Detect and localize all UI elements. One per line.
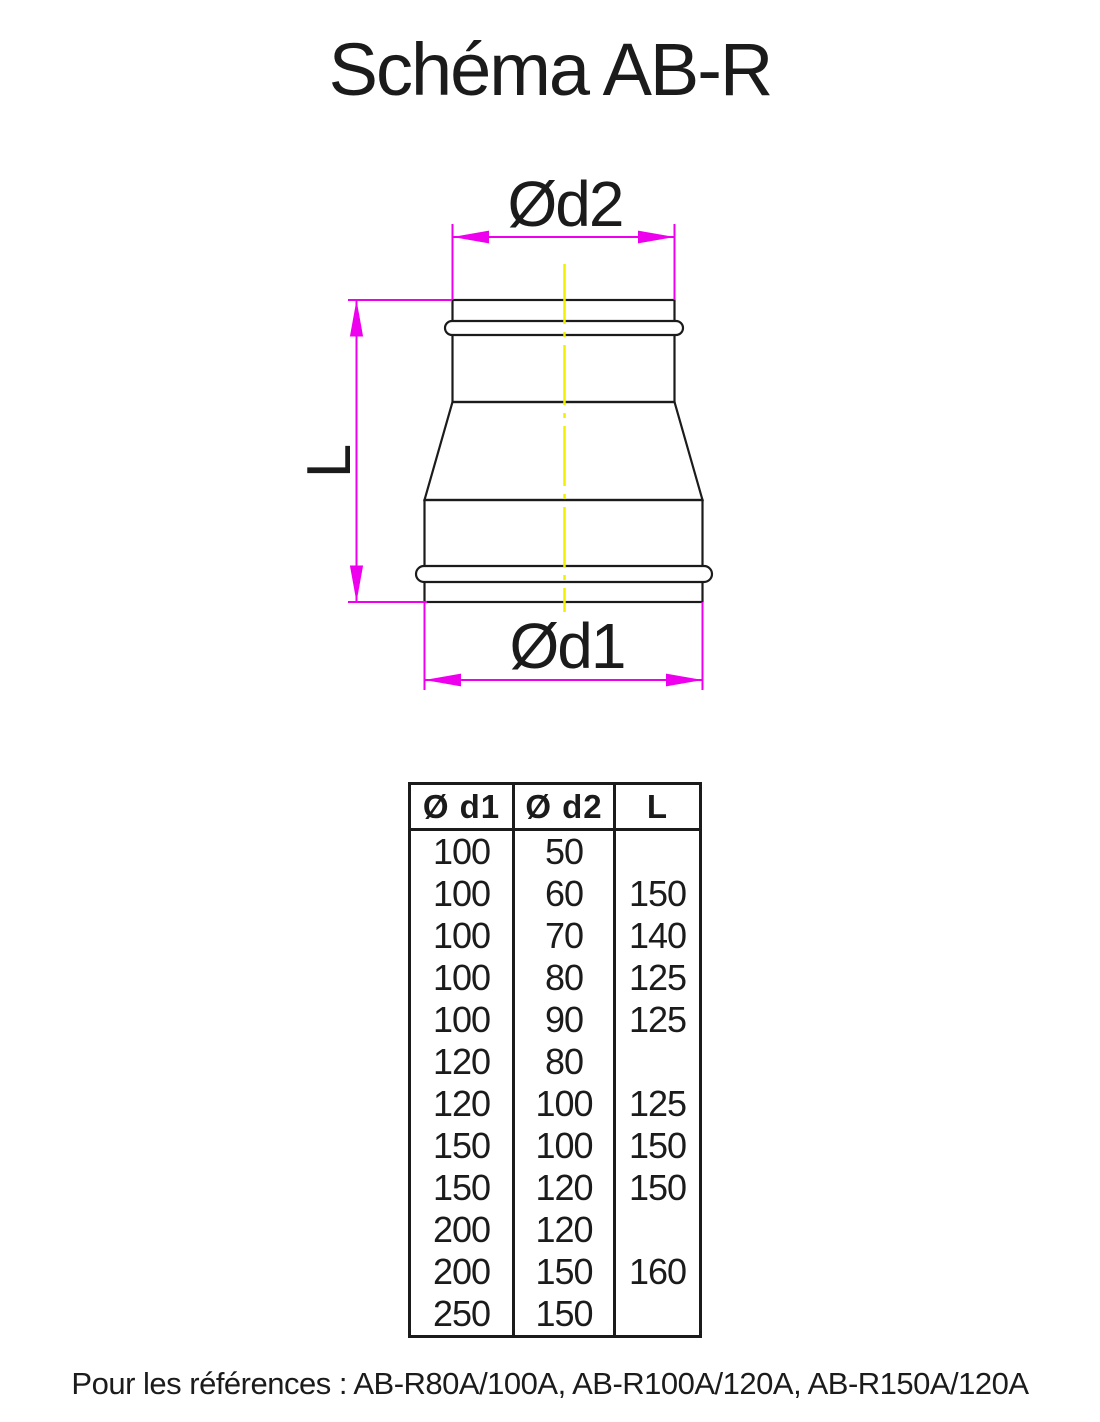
table-cell: 120 bbox=[514, 1209, 615, 1251]
references-note: Pour les références : AB-R80A/100A, AB-R… bbox=[0, 1366, 1100, 1402]
table-cell: 120 bbox=[514, 1167, 615, 1209]
table-row: 150100150 bbox=[410, 1125, 701, 1167]
table-cell: 150 bbox=[410, 1125, 514, 1167]
table-cell: 100 bbox=[410, 873, 514, 915]
table-row: 200150160 bbox=[410, 1251, 701, 1293]
table-cell: 80 bbox=[514, 1041, 615, 1083]
table-row: 12080 bbox=[410, 1041, 701, 1083]
table-cell: 140 bbox=[615, 915, 701, 957]
table-cell: 100 bbox=[410, 957, 514, 999]
table-cell: 150 bbox=[615, 873, 701, 915]
table-cell: 70 bbox=[514, 915, 615, 957]
table-cell: 120 bbox=[410, 1083, 514, 1125]
table-cell: 120 bbox=[410, 1041, 514, 1083]
table-row: 250150 bbox=[410, 1293, 701, 1337]
table-cell: 60 bbox=[514, 873, 615, 915]
dim-label-l: L bbox=[295, 445, 364, 478]
table-cell bbox=[615, 830, 701, 874]
page: Schéma AB-R Ød2 L bbox=[0, 0, 1100, 1422]
dimension-l: L bbox=[295, 300, 452, 602]
arrowhead-left bbox=[425, 674, 462, 687]
table-cell: 100 bbox=[514, 1125, 615, 1167]
table-cell bbox=[615, 1293, 701, 1337]
arrowhead-up bbox=[350, 300, 363, 337]
dimensions-table: Ø d1 Ø d2 L 1005010060150100701401008012… bbox=[408, 782, 702, 1338]
arrowhead-left bbox=[453, 231, 490, 244]
arrowhead-right bbox=[666, 674, 703, 687]
table-cell: 125 bbox=[615, 999, 701, 1041]
table-header-row: Ø d1 Ø d2 L bbox=[410, 784, 701, 830]
table-row: 120100125 bbox=[410, 1083, 701, 1125]
table-cell: 125 bbox=[615, 1083, 701, 1125]
table-cell: 200 bbox=[410, 1251, 514, 1293]
table-cell: 150 bbox=[514, 1293, 615, 1337]
dim-label-d1: Ød1 bbox=[510, 610, 625, 682]
header-l: L bbox=[615, 784, 701, 830]
table-row: 10080125 bbox=[410, 957, 701, 999]
table-cell: 100 bbox=[410, 915, 514, 957]
table-cell: 150 bbox=[615, 1125, 701, 1167]
table-cell: 100 bbox=[410, 830, 514, 874]
arrowhead-right bbox=[638, 231, 675, 244]
table-cell bbox=[615, 1209, 701, 1251]
table-cell: 150 bbox=[514, 1251, 615, 1293]
table-row: 10050 bbox=[410, 830, 701, 874]
table-cell: 125 bbox=[615, 957, 701, 999]
arrowhead-down bbox=[350, 566, 363, 603]
table-row: 10090125 bbox=[410, 999, 701, 1041]
table-cell: 250 bbox=[410, 1293, 514, 1337]
table-cell: 200 bbox=[410, 1209, 514, 1251]
table-row: 10060150 bbox=[410, 873, 701, 915]
table-cell: 90 bbox=[514, 999, 615, 1041]
table-body: 1005010060150100701401008012510090125120… bbox=[410, 830, 701, 1337]
table-cell bbox=[615, 1041, 701, 1083]
dim-label-d2: Ød2 bbox=[508, 168, 623, 240]
table-cell: 160 bbox=[615, 1251, 701, 1293]
table-cell: 100 bbox=[514, 1083, 615, 1125]
header-d1: Ø d1 bbox=[410, 784, 514, 830]
table-header: Ø d1 Ø d2 L bbox=[410, 784, 701, 830]
table-cell: 50 bbox=[514, 830, 615, 874]
table-cell: 80 bbox=[514, 957, 615, 999]
dimension-d1: Ød1 bbox=[425, 602, 703, 690]
table-cell: 150 bbox=[410, 1167, 514, 1209]
table-cell: 150 bbox=[615, 1167, 701, 1209]
table-row: 150120150 bbox=[410, 1167, 701, 1209]
table-cell: 100 bbox=[410, 999, 514, 1041]
table-row: 10070140 bbox=[410, 915, 701, 957]
header-d2: Ø d2 bbox=[514, 784, 615, 830]
table-row: 200120 bbox=[410, 1209, 701, 1251]
